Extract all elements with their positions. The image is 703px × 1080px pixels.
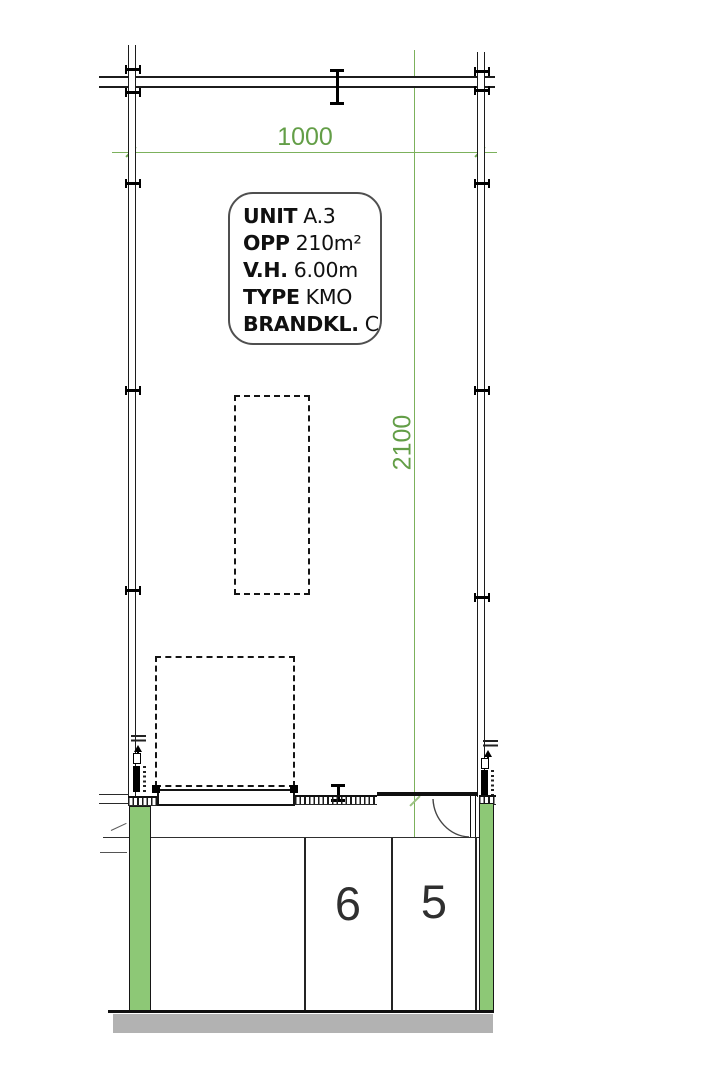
- wall-joint-icon: [125, 386, 141, 395]
- type-value: KMO: [306, 285, 352, 309]
- height-label: V.H.: [243, 258, 288, 282]
- break-line: [111, 823, 127, 831]
- unit-info-box: UNITA.3 OPP210m² V.H.6.00m TYPEKMO BRAND…: [228, 192, 382, 345]
- steel-column-icon: [330, 69, 344, 105]
- dimension-tick-bottom: [409, 795, 420, 806]
- adjacent-wall-stub: [99, 794, 129, 804]
- road-strip: [113, 1014, 493, 1033]
- sidewalk-line: [103, 837, 129, 838]
- top-wall: [99, 76, 495, 88]
- column-marker-icon: [474, 67, 490, 76]
- adjacent-edge-line: [100, 852, 127, 853]
- unit-info-row: BRANDKL.C: [243, 311, 380, 338]
- column-marker-icon: [125, 65, 141, 74]
- wall-joint-icon: [474, 593, 490, 602]
- sidewalk-line: [151, 837, 479, 838]
- column-marker-icon: [125, 88, 141, 97]
- wall-joint-icon: [474, 386, 490, 395]
- door-annotation-symbol: [133, 753, 141, 764]
- dimension-label-width: 1000: [265, 123, 345, 152]
- curb-line: [108, 1010, 494, 1013]
- door-end-cap: [152, 785, 160, 793]
- door-end-cap: [290, 785, 298, 793]
- wall-joint-icon: [125, 179, 141, 188]
- height-value: 6.00m: [294, 258, 358, 282]
- parking-boundary: [475, 838, 477, 1012]
- area-value: 210m²: [296, 231, 362, 255]
- parking-space-number-6: 6: [318, 880, 378, 927]
- door-annotation-text: [483, 740, 498, 747]
- parking-divider: [304, 838, 306, 1012]
- fireclass-label: BRANDKL.: [243, 312, 359, 336]
- left-wall: [128, 45, 136, 797]
- facade-wall-segment: [128, 796, 158, 806]
- unit-info-row: TYPEKMO: [243, 284, 380, 311]
- door-annotation-text: [131, 735, 146, 742]
- dimension-line-horizontal: [112, 152, 497, 153]
- area-label: OPP: [243, 231, 290, 255]
- right-wall: [477, 52, 485, 797]
- door-annotation-bar: [133, 766, 140, 792]
- wall-joint-icon: [474, 179, 490, 188]
- dimension-label-height: 2100: [389, 403, 418, 483]
- fireclass-value: C: [365, 312, 379, 336]
- sectional-door: [157, 789, 295, 806]
- unit-info-row: OPP210m²: [243, 230, 380, 257]
- unit-value: A.3: [303, 204, 335, 228]
- column-right: [479, 803, 494, 1012]
- column-left: [129, 806, 151, 1012]
- type-label: TYPE: [243, 285, 300, 309]
- unit-info-row: V.H.6.00m: [243, 257, 380, 284]
- door-leaf: [470, 796, 476, 838]
- column-marker-icon: [474, 86, 490, 95]
- floorplan-canvas: 1000 2100 UNITA.3 OPP210m² V.H.6.00m TYP…: [0, 0, 703, 1080]
- door-annotation-text: [491, 770, 494, 796]
- parking-space-number-5: 5: [404, 878, 464, 925]
- door-annotation-symbol: [481, 758, 489, 769]
- dashed-zone-lower: [155, 656, 295, 787]
- door-annotation-text: [143, 766, 146, 792]
- facade-wall-segment: [295, 795, 377, 805]
- unit-label: UNIT: [243, 204, 297, 228]
- unit-info-row: UNITA.3: [243, 203, 380, 230]
- parking-divider: [391, 838, 393, 1012]
- dashed-zone-upper: [234, 395, 310, 595]
- wall-joint-icon: [125, 586, 141, 595]
